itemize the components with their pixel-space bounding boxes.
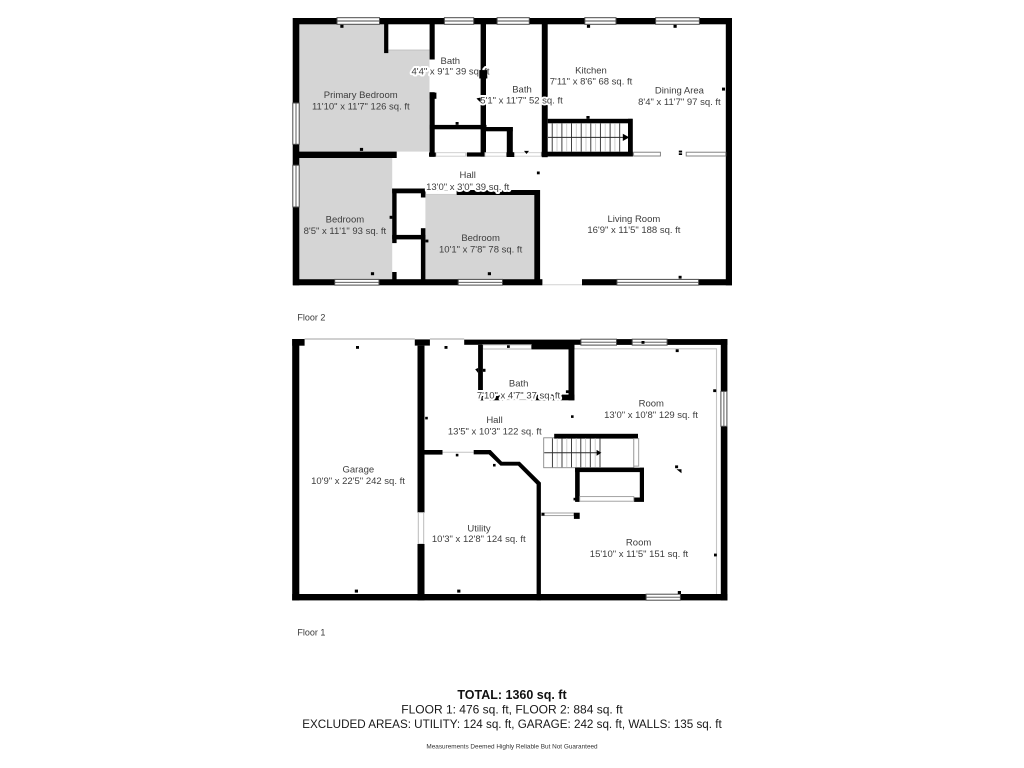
- svg-text:10'9" x 22'5" 242 sq. ft: 10'9" x 22'5" 242 sq. ft: [311, 476, 405, 487]
- svg-text:TOTAL: 1360 sq. ft: TOTAL: 1360 sq. ft: [457, 688, 567, 702]
- svg-text:11'10" x 11'7" 126 sq. ft: 11'10" x 11'7" 126 sq. ft: [312, 102, 410, 113]
- svg-text:EXCLUDED AREAS: UTILITY: 124 s: EXCLUDED AREAS: UTILITY: 124 sq. ft, GAR…: [302, 718, 722, 731]
- svg-text:Floor 2: Floor 2: [297, 313, 325, 323]
- svg-text:Room: Room: [626, 537, 651, 548]
- svg-text:Bath: Bath: [512, 84, 532, 95]
- svg-text:Bedroom: Bedroom: [461, 233, 500, 244]
- svg-text:Dining Area: Dining Area: [655, 85, 705, 96]
- svg-text:Hall: Hall: [486, 415, 502, 426]
- svg-text:Primary Bedroom: Primary Bedroom: [324, 90, 398, 101]
- svg-text:10'1" x 7'8" 78 sq. ft: 10'1" x 7'8" 78 sq. ft: [439, 245, 523, 256]
- svg-text:13'0" x 10'8" 129 sq. ft: 13'0" x 10'8" 129 sq. ft: [604, 410, 698, 421]
- svg-text:4'4" x 9'1" 39 sq. ft: 4'4" x 9'1" 39 sq. ft: [412, 67, 490, 78]
- svg-text:FLOOR 1: 476 sq. ft, FLOOR 2:: FLOOR 1: 476 sq. ft, FLOOR 2: 884 sq. ft: [401, 703, 623, 717]
- svg-text:Room: Room: [639, 399, 664, 410]
- svg-text:7'11" x 8'6" 68 sq. ft: 7'11" x 8'6" 68 sq. ft: [550, 77, 633, 88]
- svg-text:5'1" x 11'7" 52 sq. ft: 5'1" x 11'7" 52 sq. ft: [480, 96, 563, 107]
- svg-text:8'4" x 11'7" 97 sq. ft: 8'4" x 11'7" 97 sq. ft: [638, 97, 721, 108]
- svg-text:13'0" x 3'0" 39 sq. ft: 13'0" x 3'0" 39 sq. ft: [426, 182, 510, 193]
- svg-text:15'10" x 11'5" 151 sq. ft: 15'10" x 11'5" 151 sq. ft: [590, 549, 689, 560]
- svg-text:Bath: Bath: [509, 379, 529, 390]
- svg-text:Floor 1: Floor 1: [297, 628, 325, 638]
- svg-text:Bath: Bath: [441, 56, 461, 67]
- svg-text:Kitchen: Kitchen: [575, 66, 607, 77]
- svg-text:8'5" x 11'1" 93 sq. ft: 8'5" x 11'1" 93 sq. ft: [304, 226, 387, 237]
- svg-text:7'10" x 4'7" 37 sq. ft: 7'10" x 4'7" 37 sq. ft: [477, 390, 561, 401]
- svg-text:Garage: Garage: [342, 465, 374, 476]
- svg-text:Hall: Hall: [460, 170, 476, 181]
- svg-text:Measurements Deemed Highly Rel: Measurements Deemed Highly Reliable But …: [426, 743, 598, 750]
- svg-text:Living Room: Living Room: [607, 214, 660, 225]
- svg-text:10'3" x 12'8" 124 sq. ft: 10'3" x 12'8" 124 sq. ft: [432, 534, 526, 545]
- svg-text:16'9" x 11'5" 188 sq. ft: 16'9" x 11'5" 188 sq. ft: [587, 225, 680, 236]
- svg-text:Bedroom: Bedroom: [326, 215, 365, 226]
- svg-text:13'5" x 10'3" 122 sq. ft: 13'5" x 10'3" 122 sq. ft: [448, 427, 542, 438]
